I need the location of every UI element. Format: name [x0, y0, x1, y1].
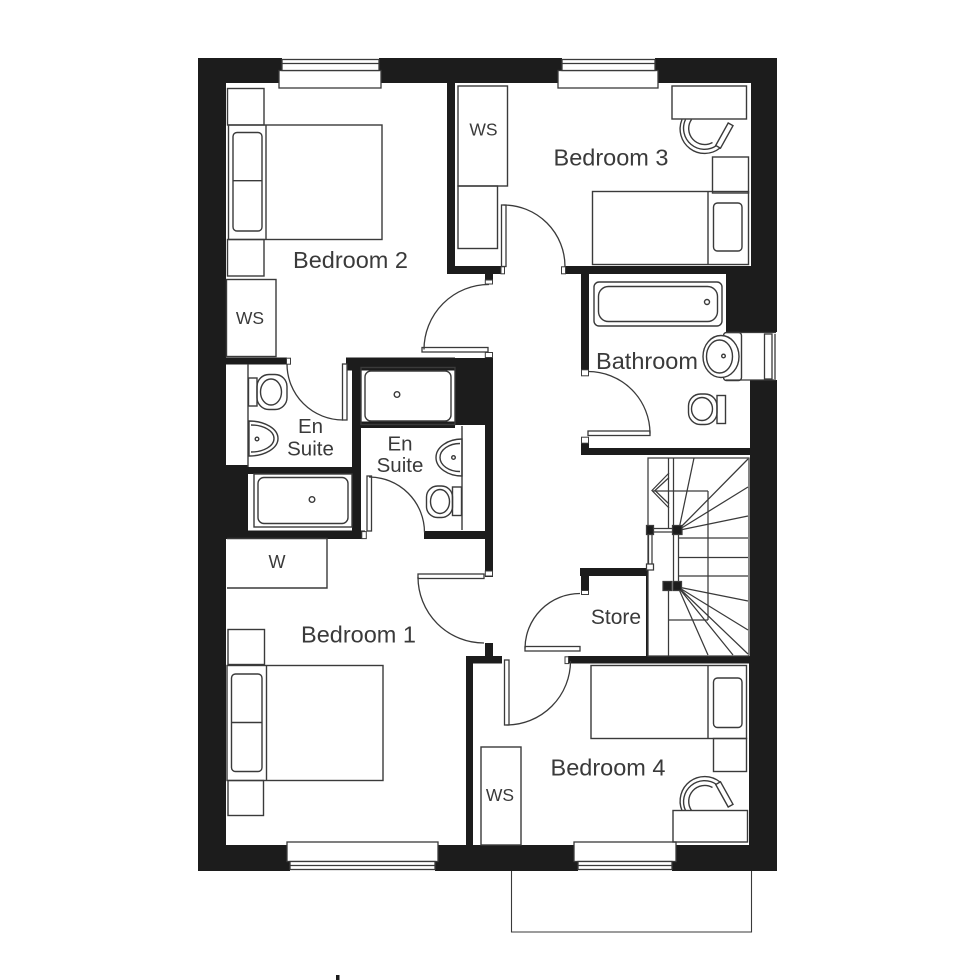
svg-text:Bedroom 2: Bedroom 2 [293, 247, 408, 273]
svg-text:WS: WS [236, 308, 264, 328]
svg-text:En: En [298, 415, 323, 438]
svg-text:Suite: Suite [377, 454, 424, 477]
svg-text:WS: WS [486, 785, 514, 805]
svg-text:Bedroom 1: Bedroom 1 [301, 622, 416, 648]
svg-text:En: En [387, 433, 412, 456]
svg-text:Store: Store [591, 606, 641, 629]
svg-text:W: W [269, 552, 286, 572]
svg-text:Bathroom: Bathroom [596, 348, 698, 374]
svg-text:Bedroom 3: Bedroom 3 [554, 145, 669, 171]
svg-text:Suite: Suite [287, 438, 334, 461]
svg-text:WS: WS [469, 120, 497, 140]
svg-text:Bedroom 4: Bedroom 4 [551, 755, 666, 781]
